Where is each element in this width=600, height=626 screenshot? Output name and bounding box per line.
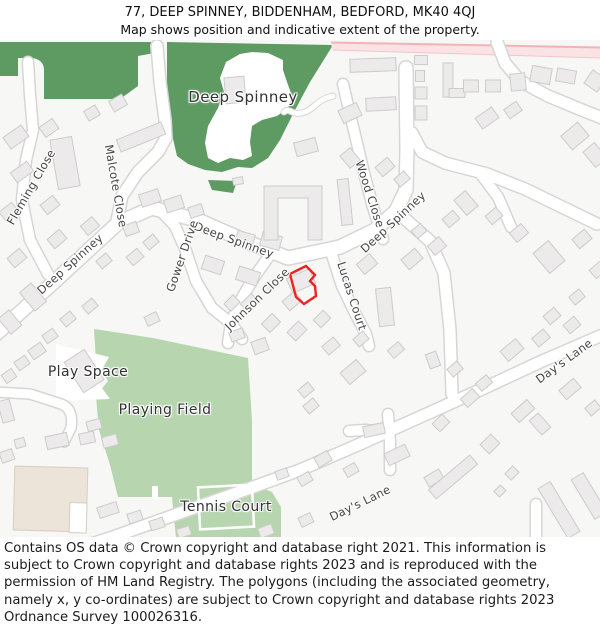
map-canvas (0, 0, 600, 625)
page-subtitle: Map shows position and indicative extent… (0, 20, 600, 37)
footer: Contains OS data © Crown copyright and d… (0, 537, 600, 625)
copyright-text: Contains OS data © Crown copyright and d… (0, 537, 600, 626)
building-footprint (415, 56, 428, 65)
building-footprint (486, 80, 501, 92)
building-footprint (232, 177, 243, 186)
building-footprint (14, 437, 26, 448)
page: { "header": { "line1": "77, DEEP SPINNEY… (0, 0, 600, 625)
header: 77, DEEP SPINNEY, BIDDENHAM, BEDFORD, MK… (0, 0, 600, 40)
building-footprint (449, 89, 465, 98)
building-footprint (350, 58, 396, 73)
building-footprint (366, 97, 397, 112)
building-footprint (224, 76, 246, 104)
building-footprint (556, 68, 577, 84)
building-footprint (416, 71, 425, 82)
building-footprint (79, 431, 96, 445)
page-title: 77, DEEP SPINNEY, BIDDENHAM, BEDFORD, MK… (0, 0, 600, 20)
building-footprint (464, 80, 479, 92)
building-footprint (530, 65, 552, 84)
building-footprint (415, 87, 427, 99)
building-footprint (510, 73, 527, 91)
building-footprint (415, 106, 427, 120)
beige-building (13, 466, 88, 533)
